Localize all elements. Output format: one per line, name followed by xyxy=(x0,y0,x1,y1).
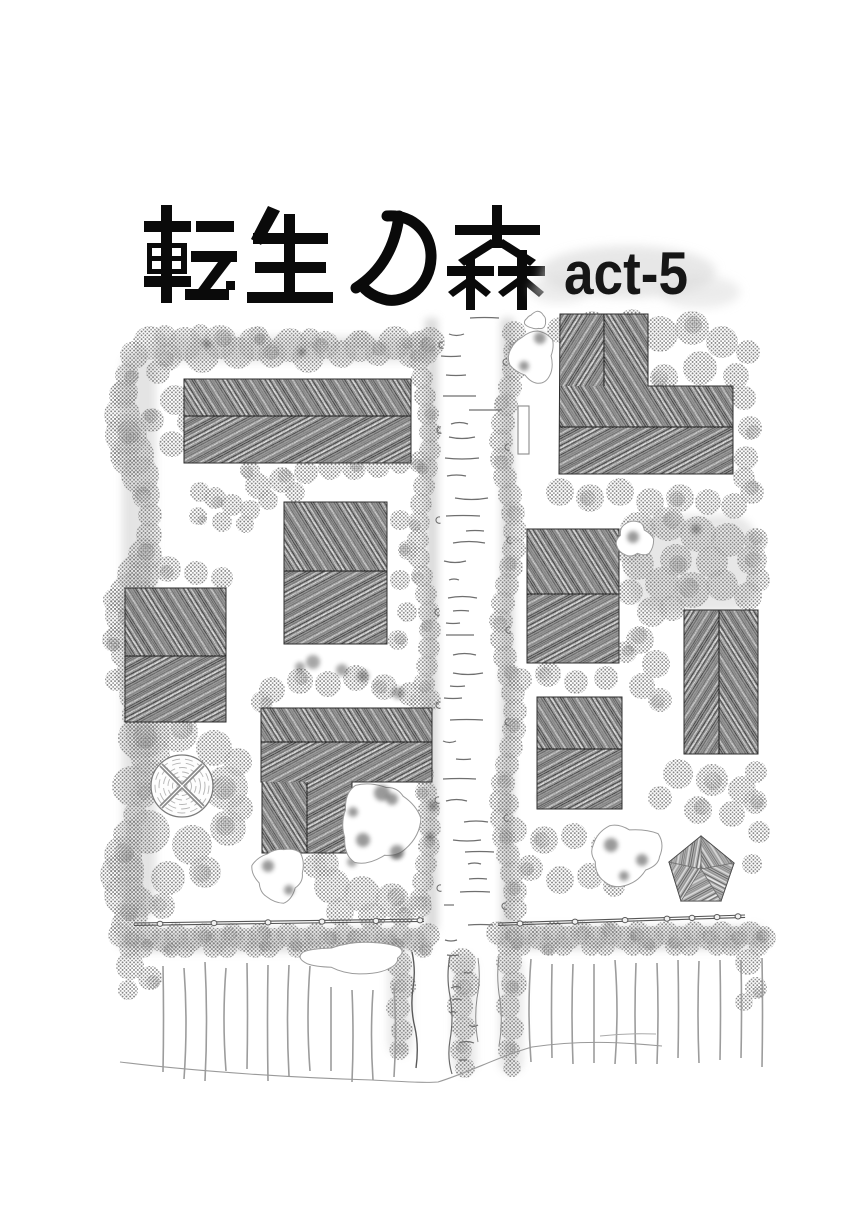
svg-text:act-5: act-5 xyxy=(564,240,688,307)
